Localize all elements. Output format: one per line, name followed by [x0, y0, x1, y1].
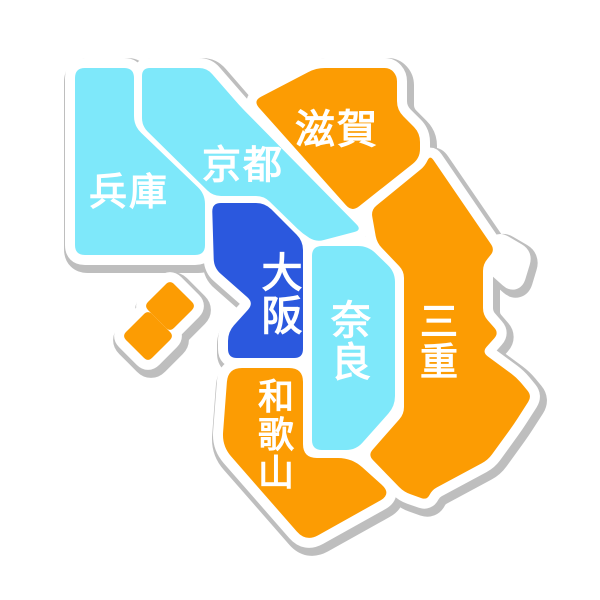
sticker-border-coast-knob	[496, 244, 520, 280]
map-canvas	[0, 0, 600, 600]
region-shape-nara	[312, 246, 395, 450]
kansai-region-map: 兵庫京都滋賀大阪奈良三重和歌山	[0, 0, 600, 600]
